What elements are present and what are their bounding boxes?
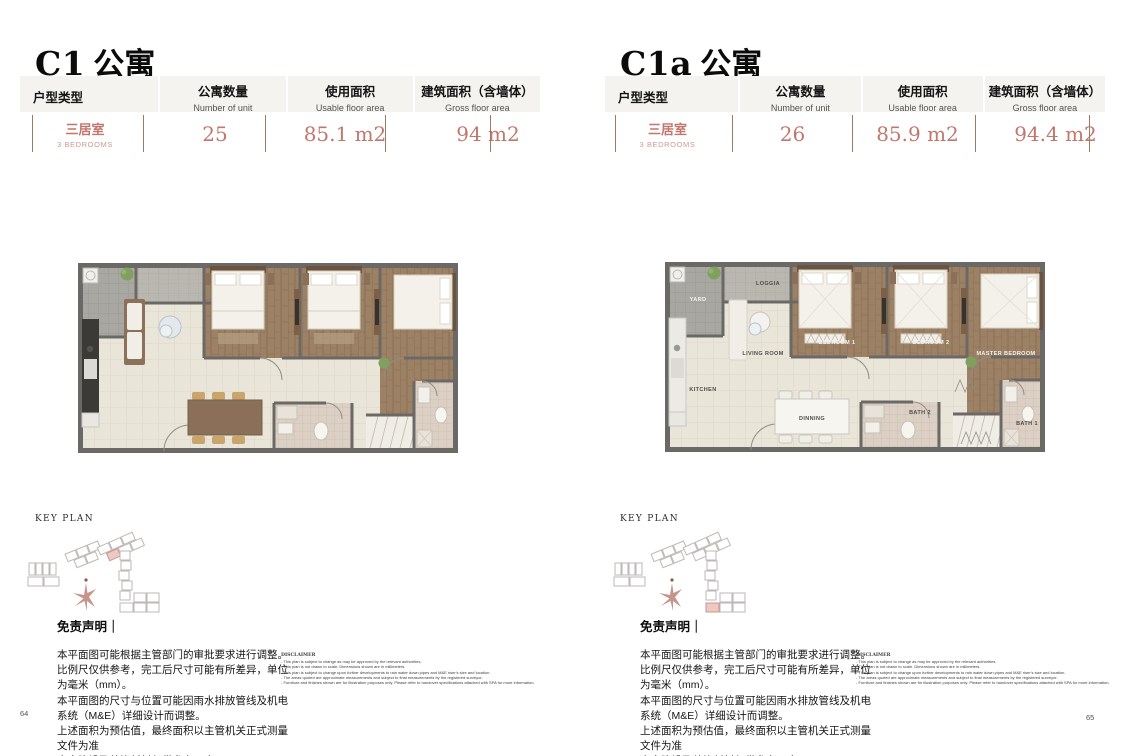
floor-plan-c1a-drawing: LOGGIA YARD LIVING ROOM KITCHEN DINNING …	[658, 262, 1052, 452]
spec-table-header: 户型类型 Unit type 公寓数量 Number of unit 使用面积 …	[605, 76, 1105, 112]
column-header-zh: 建筑面积（含墙体）	[985, 81, 1105, 100]
unit-count-cell: 26	[730, 112, 855, 155]
unit-count-value: 26	[780, 122, 805, 146]
column-header-zh: 公寓数量	[740, 81, 860, 100]
unit-type-cell: 三居室 3 BEDROOMS	[605, 112, 730, 155]
table-divider	[385, 115, 386, 152]
column-header-zh: 户型类型	[618, 87, 738, 106]
page-number: 64	[20, 709, 28, 718]
unit-type-zh: 三居室	[65, 119, 104, 138]
compass-star-icon	[659, 583, 682, 611]
floor-plan-c1a: LOGGIA YARD LIVING ROOM KITCHEN DINNING …	[658, 262, 1052, 452]
table-divider	[732, 115, 733, 152]
usable-area-value: 85.9 m2	[876, 122, 959, 146]
usable-area-cell: 85.1 m2	[280, 112, 410, 155]
unit-count-value: 25	[202, 122, 227, 146]
room-label-bedroom2: BEDROOM 2	[913, 340, 950, 346]
highlighted-building	[706, 603, 719, 612]
table-divider	[1089, 115, 1090, 152]
column-header-unit-type: 户型类型 Unit type	[20, 76, 158, 112]
disclaimer-zh-title: 免责声明｜	[640, 616, 878, 635]
disclaimer-en-title: DISCLAIMER	[856, 653, 1118, 658]
room-label-kitchen: KITCHEN	[689, 387, 716, 393]
disclaimer-zh-text: 本平面图可能根据主管部门的审批要求进行调整。 比例尺仅供参考，完工后尺寸可能有所…	[640, 648, 878, 756]
disclaimer-zh: 免责声明｜ 本平面图可能根据主管部门的审批要求进行调整。 比例尺仅供参考，完工后…	[57, 616, 295, 756]
spec-table-header: 户型类型 Unit type 公寓数量 Number of unit 使用面积 …	[20, 76, 540, 112]
table-divider	[490, 115, 491, 152]
table-divider	[265, 115, 266, 152]
room-label-master-bedroom: MASTER BEDROOM	[976, 351, 1035, 357]
gross-area-cell: 94 m2	[423, 112, 553, 155]
unit-type-cell: 三居室 3 BEDROOMS	[20, 112, 150, 155]
room-label-bath1: BATH 1	[1016, 421, 1038, 427]
column-header-number-of-unit: 公寓数量 Number of unit	[738, 76, 860, 112]
column-header-gross-area: 建筑面积（含墙体） Gross floor area	[413, 76, 540, 112]
disclaimer-en-text: - This plan is subject to change as may …	[281, 659, 543, 685]
column-header-unit-type: 户型类型 Unit type	[605, 76, 738, 112]
disclaimer-zh-text: 本平面图可能根据主管部门的审批要求进行调整。 比例尺仅供参考，完工后尺寸可能有所…	[57, 648, 295, 756]
floor-plan-c1-drawing	[78, 263, 458, 453]
column-header-zh: 使用面积	[863, 81, 983, 100]
unit-count-cell: 25	[150, 112, 280, 155]
spec-table: 户型类型 Unit type 公寓数量 Number of unit 使用面积 …	[605, 76, 1105, 155]
disclaimer-en-title: DISCLAIMER	[281, 653, 543, 658]
room-label-bath2: BATH 2	[909, 410, 931, 416]
key-plan-map	[612, 527, 752, 619]
gross-area-value: 94.4 m2	[1014, 122, 1097, 146]
disclaimer-en: DISCLAIMER - This plan is subject to cha…	[856, 653, 1118, 685]
room-label-bedroom1: BEDROOM 1	[819, 340, 856, 346]
key-plan-label: KEY PLAN	[620, 514, 679, 524]
panel-c1: C1公寓 户型类型 Unit type 公寓数量 Number of unit …	[0, 0, 560, 756]
gross-area-cell: 94.4 m2	[993, 112, 1118, 155]
column-header-zh: 户型类型	[33, 87, 158, 106]
spec-table-row: 三居室 3 BEDROOMS 26 85.9 m2 94.4 m2	[605, 112, 1105, 155]
column-header-zh: 建筑面积（含墙体）	[415, 81, 540, 100]
disclaimer-zh: 免责声明｜ 本平面图可能根据主管部门的审批要求进行调整。 比例尺仅供参考，完工后…	[640, 616, 878, 756]
usable-area-value: 85.1 m2	[304, 122, 387, 146]
room-label-dining: DINNING	[799, 416, 825, 422]
unit-type-en: 3 BEDROOMS	[57, 140, 113, 149]
room-label-yard: YARD	[690, 297, 707, 303]
column-header-usable-area: 使用面积 Usable floor area	[286, 76, 413, 112]
table-divider	[852, 115, 853, 152]
column-header-zh: 公寓数量	[160, 81, 285, 100]
room-label-loggia: LOGGIA	[756, 281, 780, 287]
table-divider	[143, 115, 144, 152]
disclaimer-en-text: - This plan is subject to change as may …	[856, 659, 1118, 685]
page-number: 65	[1086, 713, 1094, 722]
unit-type-en: 3 BEDROOMS	[639, 140, 695, 149]
column-header-gross-area: 建筑面积（含墙体） Gross floor area	[983, 76, 1105, 112]
column-header-usable-area: 使用面积 Usable floor area	[861, 76, 983, 112]
key-plan-label: KEY PLAN	[35, 514, 94, 524]
panel-c1a: C1a公寓 户型类型 Unit type 公寓数量 Number of unit…	[560, 0, 1121, 756]
spec-table-row: 三居室 3 BEDROOMS 25 85.1 m2 94 m2	[20, 112, 540, 155]
floor-plan-c1	[78, 263, 458, 453]
column-header-number-of-unit: 公寓数量 Number of unit	[158, 76, 285, 112]
gross-area-value: 94 m2	[456, 122, 520, 146]
usable-area-cell: 85.9 m2	[855, 112, 980, 155]
spec-table: 户型类型 Unit type 公寓数量 Number of unit 使用面积 …	[20, 76, 540, 155]
table-divider	[615, 115, 616, 152]
unit-type-zh: 三居室	[648, 119, 687, 138]
table-divider	[32, 115, 33, 152]
disclaimer-zh-title: 免责声明｜	[57, 616, 295, 635]
page: C1公寓 户型类型 Unit type 公寓数量 Number of unit …	[0, 0, 1121, 756]
disclaimer-en: DISCLAIMER - This plan is subject to cha…	[281, 653, 543, 685]
compass-star-icon	[73, 583, 96, 611]
column-header-zh: 使用面积	[288, 81, 413, 100]
table-divider	[975, 115, 976, 152]
room-label-living-room: LIVING ROOM	[742, 351, 783, 357]
key-plan-map	[26, 527, 166, 619]
